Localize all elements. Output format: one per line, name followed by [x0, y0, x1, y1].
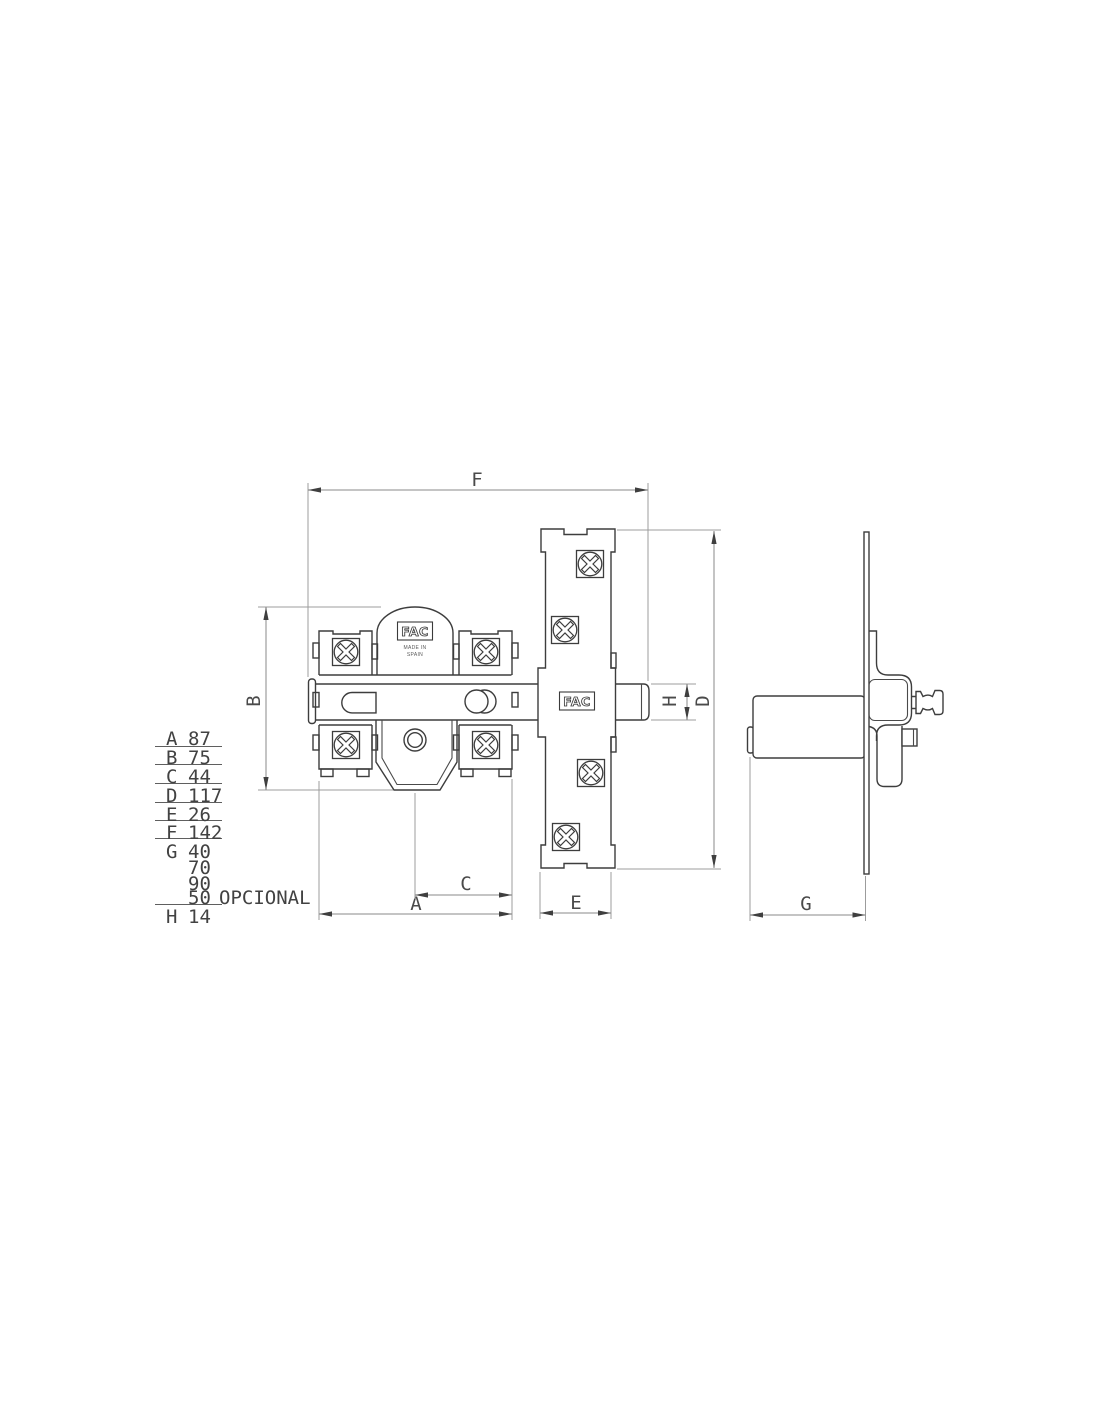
lock-technical-drawing: FAC	[0, 0, 1100, 1422]
table-row: F142	[155, 822, 222, 839]
turn-knob	[912, 691, 944, 715]
table-row: 90	[155, 873, 222, 887]
strike-plate-view	[538, 529, 616, 868]
table-row: A87	[155, 728, 222, 747]
table-row: B75	[155, 747, 222, 765]
dim-label-E: E	[570, 892, 581, 914]
technical-drawing-page: FAC	[0, 0, 1100, 1422]
side-view	[748, 532, 944, 874]
latch-roller-front	[465, 690, 488, 713]
rear-bracket	[869, 631, 917, 787]
dim-label-D: D	[692, 695, 714, 706]
table-row: D117	[155, 785, 222, 803]
bolt-peg	[902, 729, 917, 746]
optional-note: OPCIONAL	[219, 889, 311, 908]
table-row: C44	[155, 766, 222, 784]
dim-label-C: C	[460, 873, 471, 895]
table-row: H14	[155, 906, 222, 922]
lock-cylinder-side	[753, 696, 865, 758]
table-row: E26	[155, 804, 222, 821]
dim-label-F: F	[471, 469, 482, 491]
dim-label-A: A	[410, 893, 422, 915]
table-row: 50OPCIONAL	[155, 887, 222, 905]
table-row: 70	[155, 857, 222, 873]
table-row: G40	[155, 841, 222, 857]
dim-label-G: G	[800, 893, 811, 915]
dim-label-H: H	[659, 695, 681, 706]
dim-label-B: B	[243, 695, 265, 706]
key-slot	[342, 693, 376, 713]
spain-text: SPAIN	[407, 652, 423, 658]
door-plate	[864, 532, 869, 874]
made-in-text: MADE IN	[404, 645, 427, 651]
